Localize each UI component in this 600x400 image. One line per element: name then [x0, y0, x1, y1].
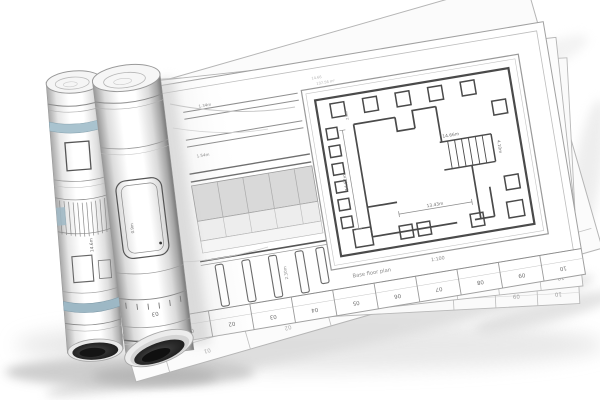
ruler-mark: 02	[228, 320, 236, 327]
blueprint-scene: 01 02 09 10 08 09 10	[0, 0, 600, 400]
back-ruler-mark: 10	[554, 290, 562, 296]
blueprint-render: 01 02 09 10 08 09 10	[0, 0, 600, 400]
roll-dim-label: 14.6m	[88, 238, 95, 252]
blue-patch	[56, 207, 66, 226]
